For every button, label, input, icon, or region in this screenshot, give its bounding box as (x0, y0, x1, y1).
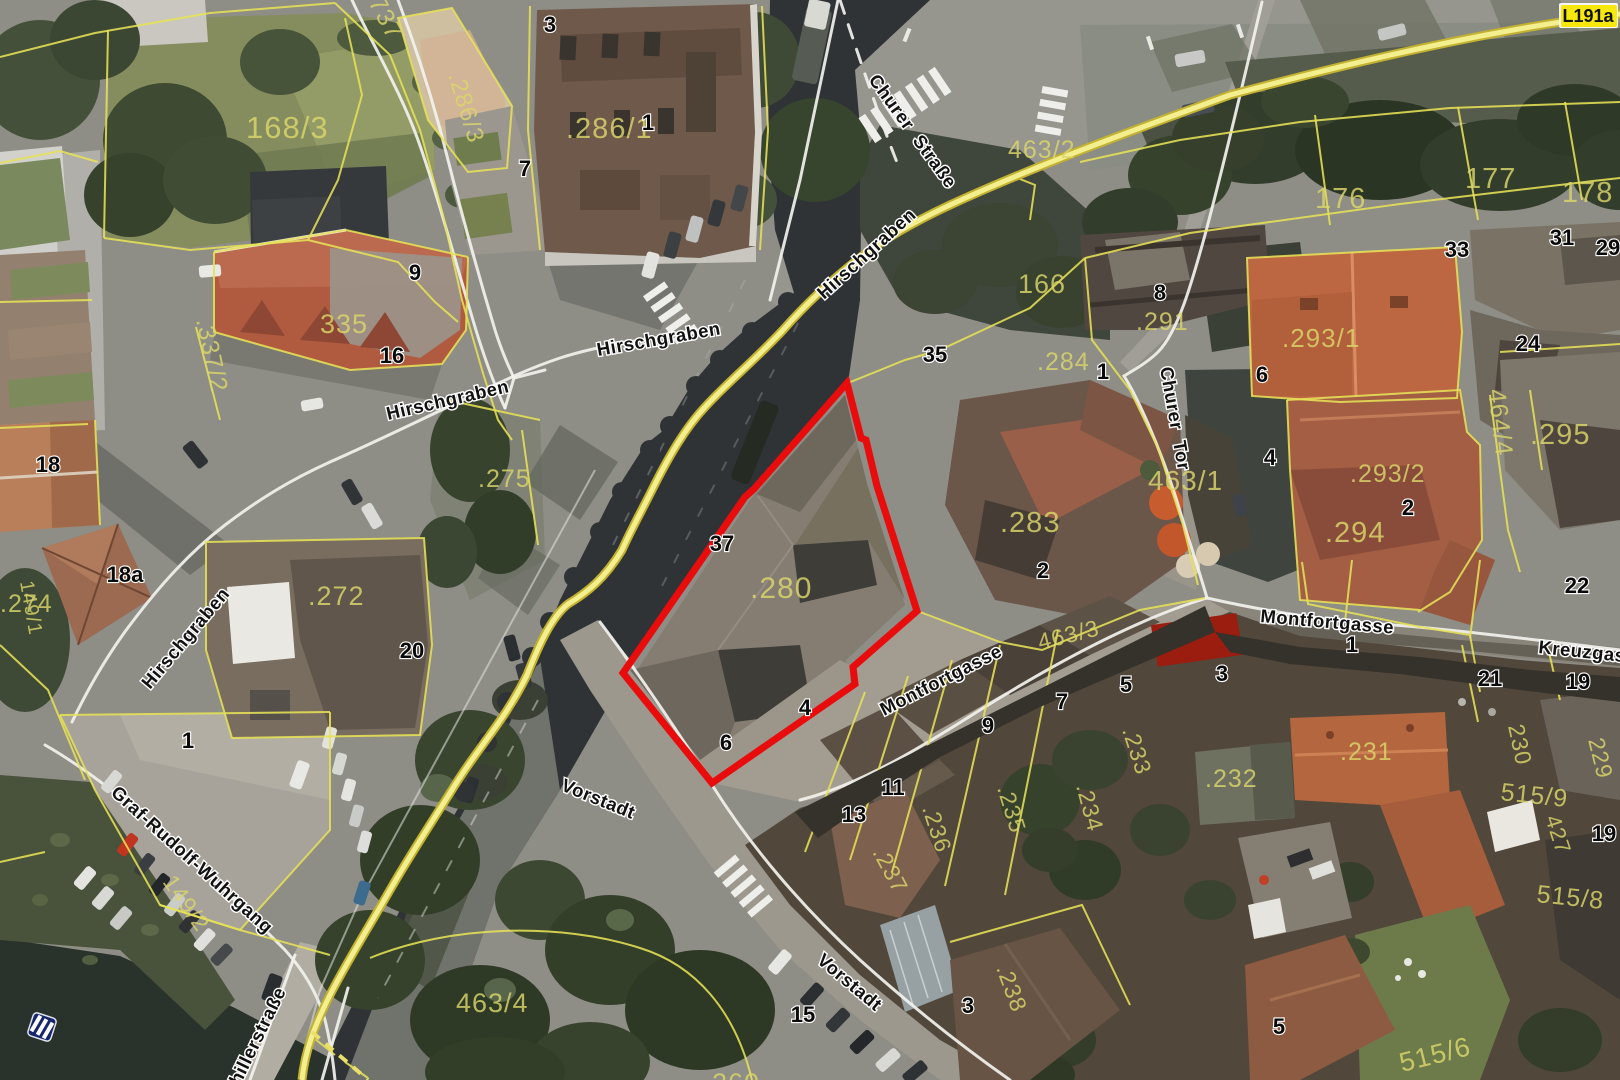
svg-text:1: 1 (1097, 359, 1109, 384)
svg-text:.280: .280 (750, 572, 812, 605)
svg-text:.275: .275 (478, 465, 531, 493)
svg-text:1: 1 (182, 728, 194, 753)
svg-text:19: 19 (1566, 669, 1590, 694)
svg-text:.291: .291 (1136, 308, 1189, 336)
svg-text:3: 3 (544, 12, 556, 37)
svg-text:.284: .284 (1037, 348, 1090, 376)
svg-text:35: 35 (923, 342, 947, 367)
svg-text:21: 21 (1478, 666, 1502, 691)
svg-text:5: 5 (1120, 672, 1132, 697)
svg-text:.283: .283 (1000, 507, 1060, 539)
svg-text:5: 5 (1273, 1014, 1285, 1039)
svg-text:22: 22 (1565, 573, 1589, 598)
svg-text:9: 9 (409, 260, 421, 285)
svg-text:6: 6 (1256, 362, 1268, 387)
svg-text:.232: .232 (1205, 765, 1258, 793)
svg-text:4: 4 (1264, 445, 1277, 470)
svg-text:.293/1: .293/1 (1282, 323, 1360, 353)
svg-text:8: 8 (1154, 280, 1166, 305)
svg-text:.295: .295 (1530, 419, 1590, 451)
svg-text:.231: .231 (1340, 738, 1393, 766)
svg-text:33: 33 (1445, 237, 1469, 262)
svg-text:.294: .294 (1325, 517, 1385, 549)
svg-text:176: 176 (1315, 183, 1366, 215)
svg-text:.293/2: .293/2 (1350, 460, 1426, 488)
svg-text:20: 20 (400, 638, 424, 663)
svg-text:2: 2 (1037, 558, 1049, 583)
svg-text:19: 19 (1592, 821, 1616, 846)
svg-text:177: 177 (1465, 163, 1516, 195)
svg-text:463/2: 463/2 (1008, 136, 1076, 164)
svg-text:31: 31 (1550, 225, 1574, 250)
svg-text:L191a: L191a (1562, 6, 1614, 26)
svg-text:2: 2 (1402, 495, 1414, 520)
svg-text:168/3: 168/3 (246, 110, 329, 145)
svg-text:.272: .272 (308, 581, 365, 611)
svg-text:.286/1: .286/1 (566, 113, 653, 145)
svg-text:24: 24 (1516, 331, 1541, 356)
svg-text:29: 29 (1596, 235, 1620, 260)
svg-text:15: 15 (791, 1002, 815, 1027)
svg-text:335: 335 (320, 309, 368, 339)
svg-text:7: 7 (519, 156, 531, 181)
svg-text:16: 16 (380, 343, 404, 368)
svg-text:1: 1 (1346, 632, 1358, 657)
svg-text:9: 9 (982, 713, 994, 738)
svg-text:1: 1 (642, 110, 654, 135)
svg-text:4: 4 (799, 695, 812, 720)
svg-text:3: 3 (962, 993, 974, 1018)
svg-text:6: 6 (720, 730, 732, 755)
svg-text:11: 11 (881, 775, 904, 800)
svg-text:166: 166 (1018, 269, 1066, 299)
svg-text:13: 13 (842, 802, 866, 827)
svg-text:37: 37 (710, 531, 734, 556)
svg-text:260: 260 (712, 1068, 760, 1080)
svg-text:18a: 18a (107, 562, 144, 587)
svg-text:18: 18 (36, 452, 60, 477)
svg-text:7: 7 (1056, 689, 1068, 714)
svg-text:463/4: 463/4 (456, 988, 529, 1018)
svg-text:178: 178 (1562, 177, 1613, 209)
svg-text:3: 3 (1216, 661, 1228, 686)
